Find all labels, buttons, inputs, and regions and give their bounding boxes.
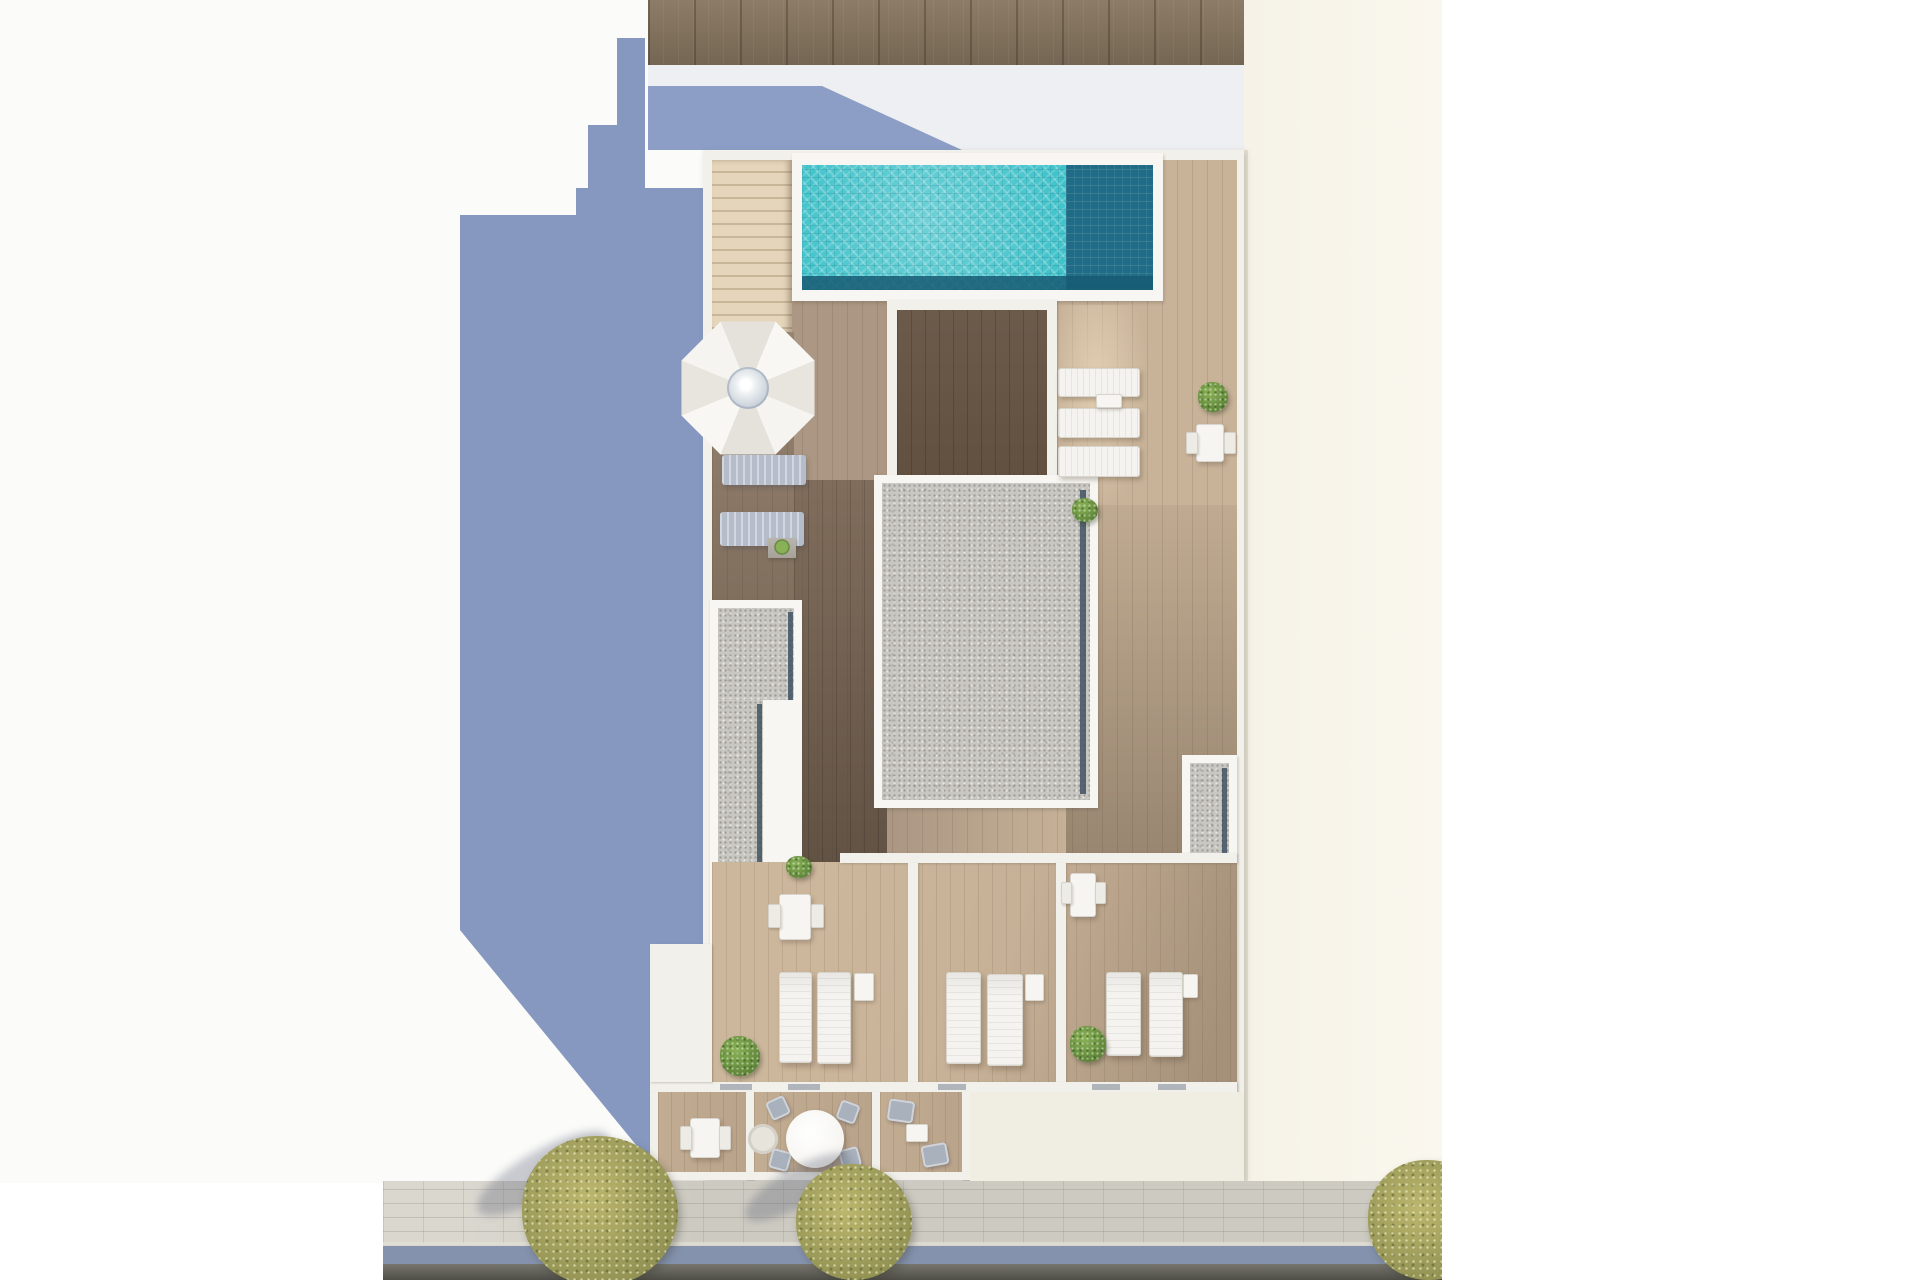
sun-lounger (987, 974, 1023, 1066)
dining-table (690, 1118, 720, 1158)
sun-lounger (1149, 972, 1183, 1057)
chair (1186, 432, 1198, 454)
planter-box (768, 538, 796, 558)
door-threshold (788, 1084, 820, 1090)
chair (811, 904, 824, 928)
sun-lounger (817, 972, 851, 1064)
render-canvas (0, 0, 1920, 1280)
sun-lounger (1058, 368, 1140, 397)
chair (719, 1126, 731, 1150)
sun-lounger (946, 972, 981, 1064)
side-table (1096, 394, 1122, 408)
door-threshold (1158, 1084, 1186, 1090)
chair (768, 904, 781, 928)
door-threshold (1092, 1084, 1120, 1090)
door-threshold (938, 1084, 966, 1090)
street-tree (522, 1136, 678, 1280)
chair (1224, 432, 1236, 454)
dining-table (1070, 873, 1096, 917)
potted-plant (786, 856, 812, 878)
chair (835, 1099, 861, 1125)
potted-plant (1198, 382, 1228, 412)
potted-plant (1072, 498, 1098, 522)
sun-lounger (722, 455, 806, 485)
potted-plant (1070, 1026, 1106, 1062)
coffee-table (906, 1124, 928, 1142)
furniture-layer (0, 0, 1442, 1280)
street-tree (796, 1164, 912, 1280)
armchair (887, 1098, 916, 1123)
chair (1095, 882, 1106, 904)
chair (765, 1095, 792, 1122)
side-table (1025, 974, 1044, 1001)
side-table (854, 973, 874, 1001)
sun-lounger (779, 972, 812, 1063)
chair (1061, 882, 1072, 904)
parasol (676, 316, 820, 460)
sun-lounger (1058, 446, 1140, 477)
door-threshold (720, 1084, 752, 1090)
render-content (0, 0, 1442, 1280)
street-tree (1368, 1160, 1442, 1280)
dining-table (779, 894, 811, 940)
dining-table (1196, 424, 1224, 462)
side-table (1183, 974, 1198, 998)
potted-plant (720, 1036, 760, 1076)
sun-lounger (1106, 972, 1141, 1056)
sun-lounger (1058, 408, 1140, 438)
armchair (920, 1142, 949, 1168)
chair (680, 1126, 692, 1150)
